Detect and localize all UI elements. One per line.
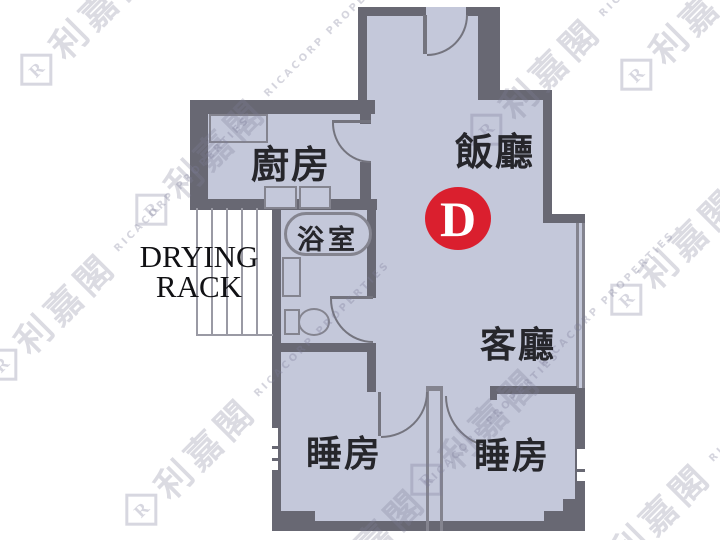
ricacorp-logo-icon: R [20, 54, 52, 86]
kitchen-appliance-1 [264, 186, 297, 209]
wall-notch-southwest [275, 511, 315, 525]
window-slot-right-2 [577, 472, 585, 481]
wall-bedroom-right-north [497, 386, 577, 394]
label-dining: 飯廳 [435, 127, 555, 169]
unit-badge: D [425, 187, 491, 250]
window-slot-left-2 [272, 449, 278, 458]
wall-between-bedrooms-right-line [440, 386, 443, 531]
watermark-group: R 利嘉閣 RICACORP PROPERTIES [597, 34, 720, 329]
drying-rack-bottom-line [196, 334, 273, 336]
toilet-bowl [298, 308, 330, 336]
wall-between-bedrooms-left-line [426, 386, 429, 531]
floorplan-canvas: R 利嘉閣 RICACORP PROPERTIES R 利嘉閣 RICACORP… [0, 0, 720, 540]
ricacorp-logo-icon: R [0, 349, 17, 381]
wall-kitchen-top [190, 100, 375, 114]
watermark-chinese: 利嘉閣 [1, 239, 127, 365]
wall-corridor-west [367, 343, 376, 392]
watermark-chinese: 利嘉閣 [36, 0, 162, 70]
kitchen-appliance-2 [299, 186, 331, 209]
wall-kitchen-east-lower [360, 162, 371, 210]
wall-entry-east-column [478, 7, 500, 91]
wall-notch-southeast-b [563, 499, 585, 515]
wall-step-horizontal [478, 90, 552, 100]
wall-west [272, 205, 281, 531]
wall-entry-west [358, 7, 367, 102]
window-slot-right-1 [577, 449, 585, 469]
watermark-chinese: 利嘉閣 [636, 0, 720, 75]
ricacorp-logo-icon: R [610, 284, 642, 316]
watermark-chinese: 利嘉閣 [141, 384, 267, 510]
window-slot-left-3 [272, 461, 278, 470]
label-kitchen: 廚房 [230, 140, 352, 182]
wall-step-horizontal-2 [543, 214, 585, 223]
watermark-group: R 利嘉閣 RICACORP PROPERTIES [7, 0, 302, 99]
wall-top-left [358, 7, 426, 16]
window-line-living-outer [582, 223, 585, 390]
label-bedroom-right: 睡房 [453, 433, 571, 473]
watermark-english: RICACORP PROPERTIES [707, 324, 720, 464]
wall-bathroom-south [272, 343, 376, 352]
label-drying-rack: DRYING RACK [128, 242, 270, 302]
window-line-living-inner [576, 223, 579, 390]
ricacorp-logo-icon: R [135, 194, 167, 226]
label-drying-line1: DRYING [128, 242, 270, 272]
shower-tray [282, 257, 301, 297]
watermark-group: R 利嘉閣 RICACORP PROPERTIES [607, 0, 720, 104]
label-bathroom: 浴室 [292, 221, 364, 254]
watermark-english: RICACORP PROPERTIES [597, 0, 720, 19]
wall-kitchen-west [190, 100, 208, 208]
label-bedroom-left: 睡房 [285, 431, 403, 471]
window-slot-left-1 [272, 428, 278, 446]
ricacorp-logo-icon: R [125, 494, 157, 526]
watermark-group: R 利嘉閣 RICACORP PROPERTIES [567, 309, 720, 540]
watermark-chinese: 利嘉閣 [596, 449, 720, 540]
label-living: 客廳 [458, 322, 578, 362]
label-drying-line2: RACK [128, 272, 270, 302]
watermark-chinese: 利嘉閣 [626, 174, 720, 300]
ricacorp-logo-icon: R [620, 59, 652, 91]
